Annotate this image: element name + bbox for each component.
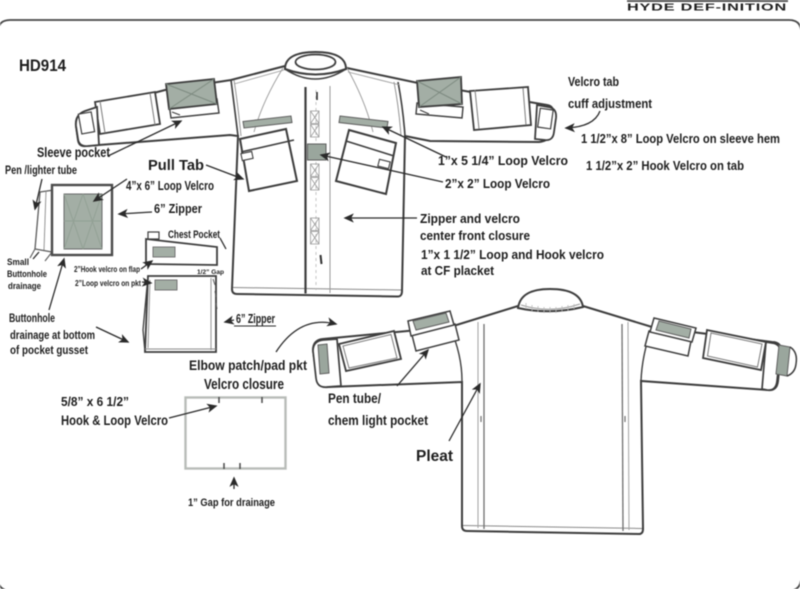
svg-text:6” Zipper: 6” Zipper: [154, 201, 202, 216]
svg-text:Zipper and velcro: Zipper and velcro: [420, 211, 520, 226]
svg-text:Chest Pocket: Chest Pocket: [168, 229, 220, 241]
svg-text:of pocket gusset: of pocket gusset: [10, 343, 88, 357]
svg-text:1”x 1 1/2” Loop and Hook velc: 1”x 1 1/2” Loop and Hook velcro: [421, 247, 604, 262]
svg-text:Pen tube/: Pen tube/: [328, 391, 381, 406]
svg-text:2”x 2” Loop Velcro: 2”x 2” Loop Velcro: [445, 176, 550, 191]
svg-text:drainage at bottom: drainage at bottom: [10, 328, 95, 342]
svg-text:Elbow patch/pad pkt: Elbow patch/pad pkt: [189, 357, 307, 373]
svg-text:2”Loop velcro on pkt: 2”Loop velcro on pkt: [75, 278, 141, 288]
svg-text:Buttonhole: Buttonhole: [7, 269, 47, 279]
svg-text:at CF placket: at CF placket: [421, 263, 495, 278]
svg-text:1”x 5 1/4” Loop Velcro: 1”x 5 1/4” Loop Velcro: [438, 153, 568, 168]
svg-text:1” Gap for drainage: 1” Gap for drainage: [188, 497, 275, 509]
svg-text:Velcro closure: Velcro closure: [204, 377, 284, 393]
svg-text:1 1/2”x 8” Loop Velcro on sl: 1 1/2”x 8” Loop Velcro on sleeve hem: [581, 131, 780, 146]
svg-text:Small: Small: [7, 257, 29, 267]
svg-text:Pull Tab: Pull Tab: [148, 158, 204, 174]
svg-text:1/2” Gap: 1/2” Gap: [197, 269, 224, 276]
svg-text:6” Zipper: 6” Zipper: [236, 312, 275, 326]
svg-text:5/8” x 6 1/2”: 5/8” x 6 1/2”: [61, 394, 129, 409]
svg-text:HD914: HD914: [19, 56, 66, 75]
svg-text:Pen /lighter tube: Pen /lighter tube: [5, 163, 77, 177]
svg-text:chem light pocket: chem light pocket: [328, 413, 428, 428]
svg-text:Hook & Loop Velcro: Hook & Loop Velcro: [61, 413, 168, 428]
svg-text:HYDE DEF-INITION: HYDE DEF-INITION: [627, 3, 787, 14]
svg-text:center front closure: center front closure: [420, 228, 530, 243]
svg-text:4”x 6” Loop Velcro: 4”x 6” Loop Velcro: [126, 178, 214, 193]
svg-text:Sleeve pocket: Sleeve pocket: [37, 144, 110, 160]
svg-text:drainage: drainage: [8, 281, 41, 291]
svg-text:2”Hook velcro on flap: 2”Hook velcro on flap: [74, 264, 140, 274]
svg-text:cuff adjustment: cuff adjustment: [568, 96, 653, 111]
svg-text:Velcro tab: Velcro tab: [568, 74, 619, 89]
svg-text:Buttonhole: Buttonhole: [9, 311, 55, 325]
svg-text:Pleat: Pleat: [416, 448, 454, 465]
svg-text:1 1/2”x 2” Hook Velcro on tab: 1 1/2”x 2” Hook Velcro on tab: [586, 158, 744, 173]
